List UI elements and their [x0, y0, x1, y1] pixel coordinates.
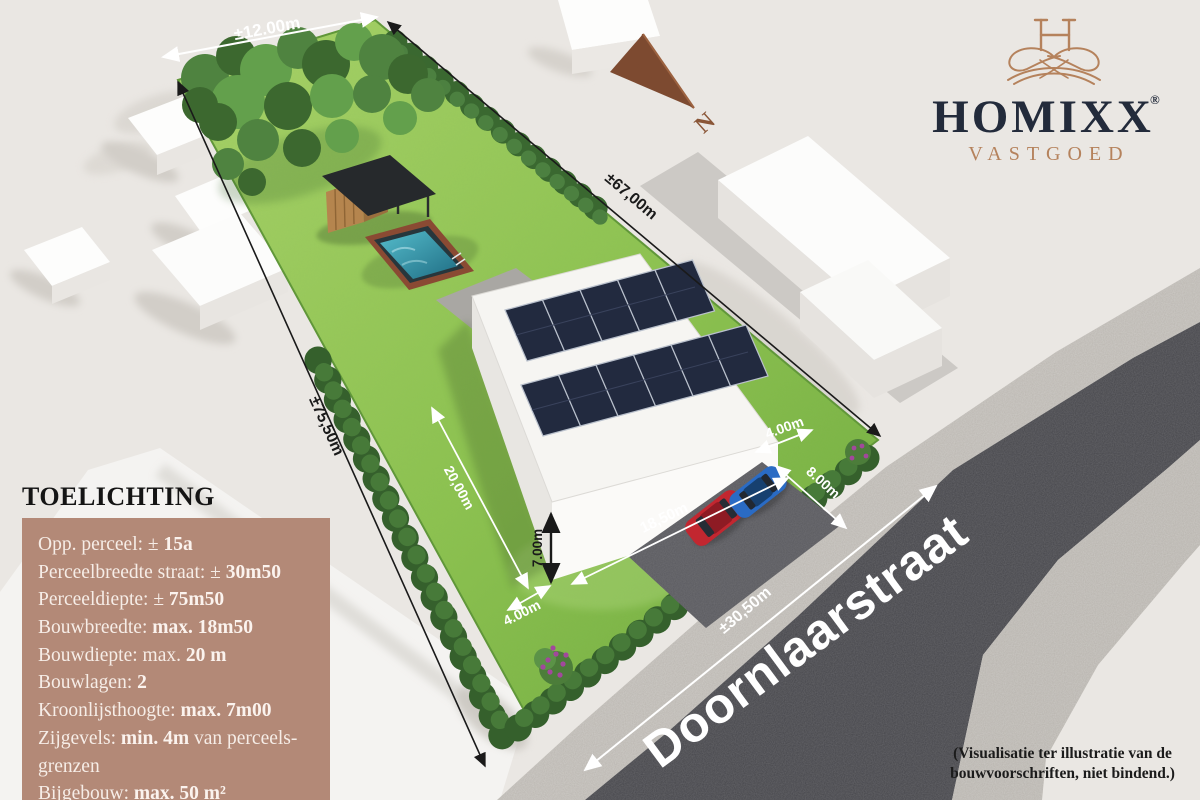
legend-item-plot-width: Perceelbreedte straat: ± 30m50 — [38, 559, 314, 587]
legend-title: TOELICHTING — [22, 482, 215, 512]
legend-panel: Opp. perceel: ± 15a Perceelbreedte straa… — [22, 518, 330, 800]
legend-item-floors: Bouwlagen: 2 — [38, 669, 314, 697]
legend-item-plot-depth: Perceeldiepte: ± 75m50 — [38, 586, 314, 614]
dim-house-height: 7.00m — [530, 529, 545, 567]
legend-item-cornice-height: Kroonlijsthoogte: max. 7m00 — [38, 697, 314, 725]
brand-tagline: VASTGOED — [968, 143, 1129, 165]
brand-name: HOMIXX — [932, 91, 1154, 143]
legend-item-outbuilding: Bijgebouw: max. 50 m² — [38, 780, 314, 800]
legend-item-build-depth: Bouwdiepte: max. 20 m — [38, 642, 314, 670]
legend-item-side-walls: Zijgevels: min. 4m van perceels-grenzen — [38, 725, 314, 780]
brand-registered-mark: ® — [1150, 92, 1160, 107]
site-plan-visualization: Doornlaarstraat ±12.00m ±75,50m ±67,00m … — [0, 0, 1200, 800]
legend-item-plot-area: Opp. perceel: ± 15a — [38, 531, 314, 559]
legend-item-build-width: Bouwbreedte: max. 18m50 — [38, 614, 314, 642]
flower-bush-right — [845, 439, 871, 465]
disclaimer-note: (Visualisatie ter illustratie van de bou… — [930, 744, 1195, 784]
